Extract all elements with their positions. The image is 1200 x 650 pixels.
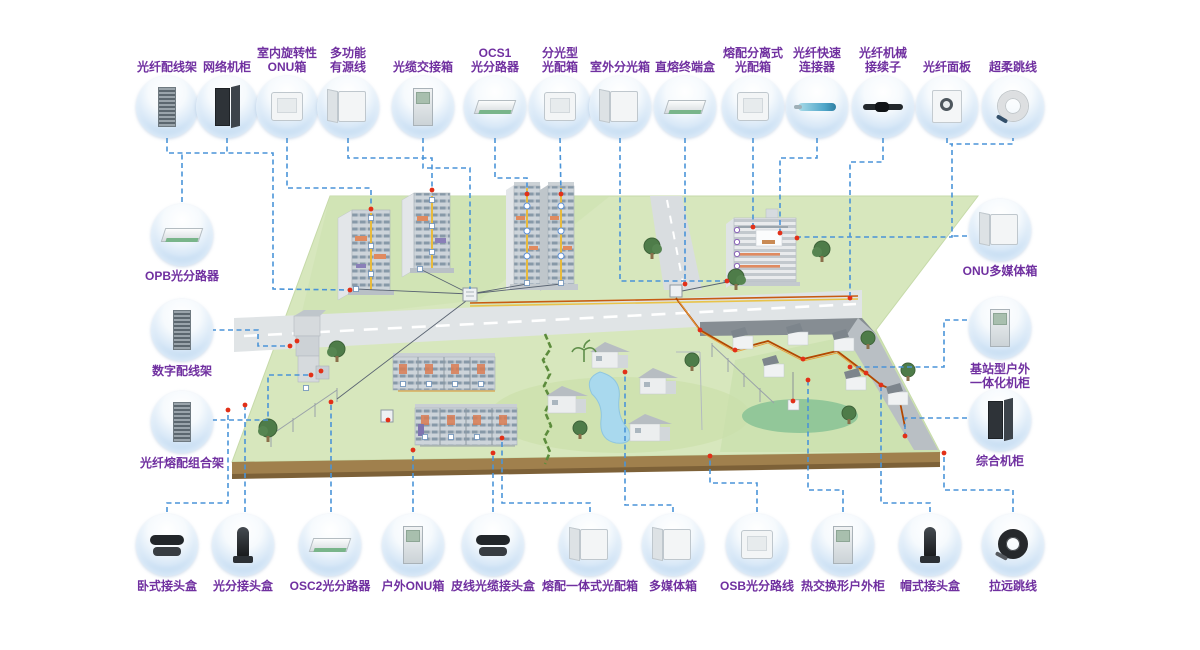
product-label: 基站型户外 一体化机柜 [942,362,1058,390]
product-item-ultra-flexible-patch-cord: 超柔跳线 [955,38,1071,138]
tray-icon [159,214,205,256]
product-circle-onu-multimedia-box[interactable] [969,199,1031,261]
tray-icon [307,524,353,566]
ftth-product-application-diagram: 光纤配线架网络机柜室内旋转性 ONU箱多功能 有源线光缆交接箱OCS1 光分路器… [0,0,1200,650]
cabinet-dark-icon [977,399,1023,441]
product-circle-cap-type-closure[interactable] [899,514,961,576]
product-item-onu-multimedia-box: ONU多媒体箱 [942,199,1058,278]
product-circle-osc2-splitter[interactable] [299,514,361,576]
product-circle-integrated-splice-odb[interactable] [559,514,621,576]
product-circle-remote-patch-cord[interactable] [982,514,1044,576]
closure-dome-icon [907,524,953,566]
product-circle-multimedia-box[interactable] [642,514,704,576]
product-circle-ultra-flexible-patch-cord[interactable] [982,76,1044,138]
product-item-remote-patch-cord: 拉远跳线 [955,514,1071,593]
product-label: 数字配线架 [124,364,240,378]
product-circle-drop-cable-closure[interactable] [462,514,524,576]
product-circle-digital-distribution-frame[interactable] [151,299,213,361]
product-label: 光纤熔配组合架 [124,456,240,470]
cabinet-icon [820,524,866,566]
product-item-digital-distribution-frame: 数字配线架 [124,299,240,378]
wallbox-open-icon [650,524,696,566]
wallbox-open-icon [567,524,613,566]
product-item-opb-splitter: OPB光分路器 [124,204,240,283]
product-item-fiber-splice-distribution-frame: 光纤熔配组合架 [124,391,240,470]
product-circle-base-station-outdoor-cabinet[interactable] [969,297,1031,359]
product-item-base-station-outdoor-cabinet: 基站型户外 一体化机柜 [942,297,1058,390]
wallbox-icon [734,524,780,566]
cabinet-icon [390,524,436,566]
product-circle-fiber-splice-distribution-frame[interactable] [151,391,213,453]
closure-flat-icon [144,524,190,566]
cabinet-icon [977,307,1023,349]
product-items: 光纤配线架网络机柜室内旋转性 ONU箱多功能 有源线光缆交接箱OCS1 光分路器… [0,0,1200,650]
coil-dark-icon [990,524,1036,566]
product-circle-opb-splitter[interactable] [151,204,213,266]
product-circle-heat-exchange-outdoor-cabinet[interactable] [812,514,874,576]
closure-flat-icon [470,524,516,566]
rack-icon [159,309,205,351]
product-circle-osb-splitter[interactable] [726,514,788,576]
rack-icon [159,401,205,443]
product-label: 拉远跳线 [955,579,1071,593]
product-item-integrated-cabinet: 综合机柜 [942,389,1058,468]
coil-light-icon [990,86,1036,128]
wallbox-open-icon [977,209,1023,251]
product-label: 超柔跳线 [955,38,1071,74]
product-circle-integrated-cabinet[interactable] [969,389,1031,451]
product-label: OPB光分路器 [124,269,240,283]
product-label: 综合机柜 [942,454,1058,468]
closure-dome-icon [220,524,266,566]
product-circle-splitting-closure[interactable] [212,514,274,576]
product-label: ONU多媒体箱 [942,264,1058,278]
